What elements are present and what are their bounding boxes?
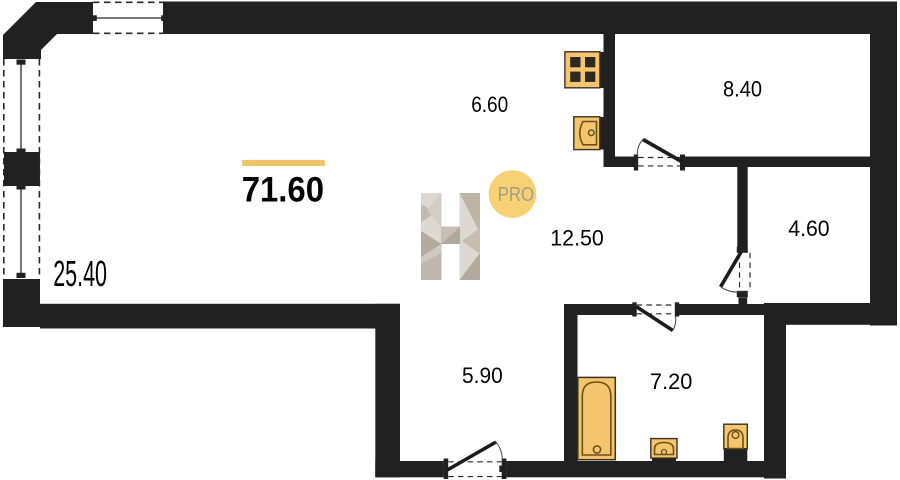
svg-text:71.60: 71.60 bbox=[242, 169, 324, 209]
svg-text:7.20: 7.20 bbox=[650, 369, 692, 394]
svg-text:PRO: PRO bbox=[498, 183, 535, 206]
svg-text:5.90: 5.90 bbox=[462, 363, 503, 388]
svg-text:25.40: 25.40 bbox=[53, 253, 107, 294]
svg-text:6.60: 6.60 bbox=[471, 92, 508, 117]
svg-text:12.50: 12.50 bbox=[550, 226, 604, 251]
svg-text:4.60: 4.60 bbox=[788, 216, 829, 241]
svg-text:8.40: 8.40 bbox=[723, 77, 762, 102]
